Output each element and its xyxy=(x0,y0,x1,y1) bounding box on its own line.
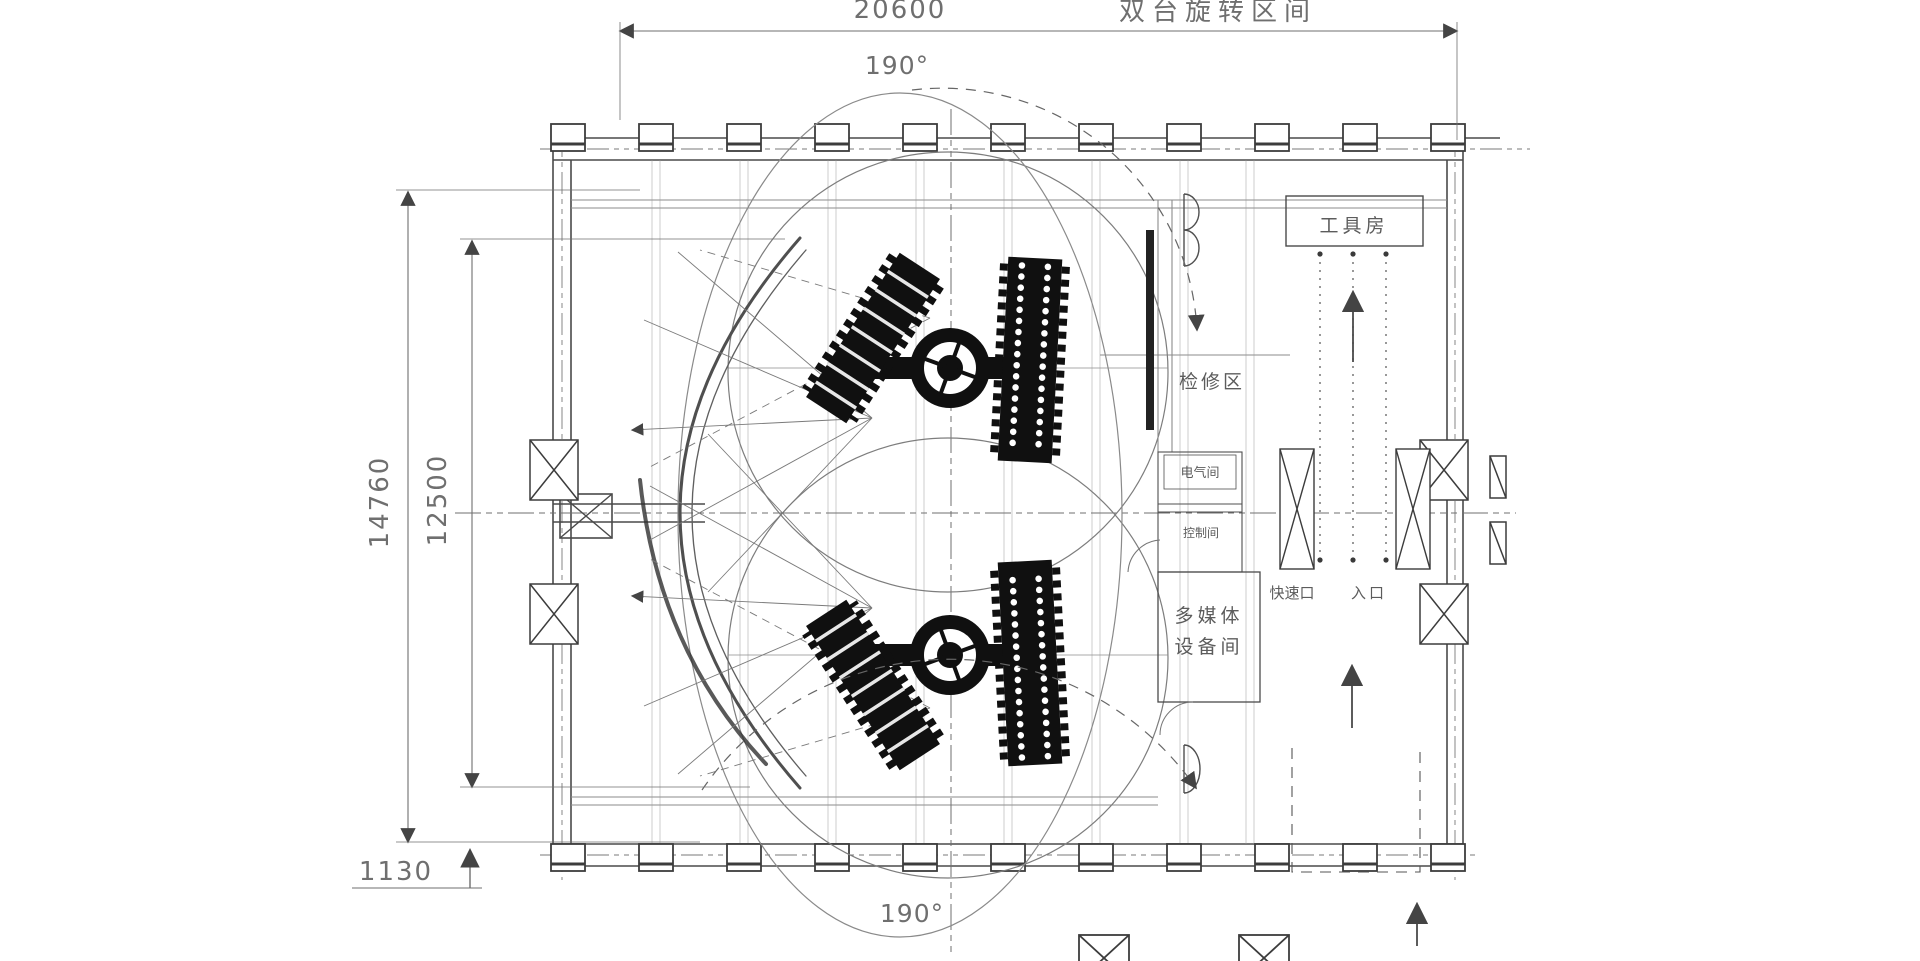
stage-unit-upper xyxy=(803,251,1067,464)
corridor-braced-blocks xyxy=(1280,449,1430,569)
columns-bottom xyxy=(551,844,1465,871)
angle-top: 190° xyxy=(865,51,929,80)
room-label-multimedia-line1: 多媒体 xyxy=(1174,605,1243,627)
room-label-electrical: 电气间 xyxy=(1180,465,1219,481)
wall-centerlines xyxy=(540,125,1530,880)
cad-floor-plan-page: 20600 双台旋转区间 190° 14760 12500 1130 190° … xyxy=(0,0,1920,961)
room-label-tool-room: 工具房 xyxy=(1319,215,1388,237)
footing-blocks xyxy=(1079,935,1289,961)
room-label-control: 控制间 xyxy=(1183,526,1219,540)
rotation-circles xyxy=(678,93,1168,937)
label-entrance: 入口 xyxy=(1351,584,1387,602)
room-label-service-area: 检修区 xyxy=(1179,371,1245,393)
room-label-multimedia-line2: 设备间 xyxy=(1174,636,1243,658)
dim-offset-bottom: 1130 xyxy=(359,857,433,887)
floor-plan-drawing: 20600 双台旋转区间 190° 14760 12500 1130 190° … xyxy=(0,0,1920,961)
dim-top-width: 20600 xyxy=(854,0,947,25)
angle-bottom: 190° xyxy=(880,899,944,928)
dim-height-outer: 14760 xyxy=(365,456,395,549)
label-fast-exit: 快速口 xyxy=(1269,584,1314,602)
dim-height-inner: 12500 xyxy=(423,454,453,547)
service-strip xyxy=(1146,194,1200,793)
zone-label: 双台旋转区间 xyxy=(1119,0,1317,27)
grid-lines xyxy=(652,160,1254,844)
